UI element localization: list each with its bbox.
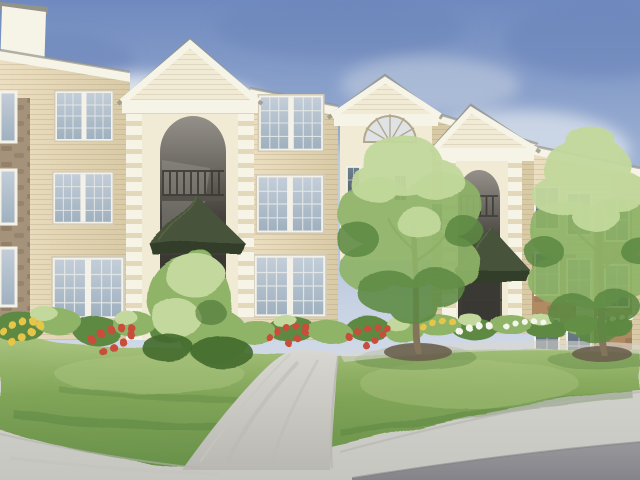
window xyxy=(0,248,16,306)
window xyxy=(258,94,325,152)
window xyxy=(0,170,16,224)
quoins xyxy=(126,114,142,340)
scene-canvas: Watercolor architectural rendering of a … xyxy=(0,0,640,480)
window xyxy=(54,90,114,142)
window xyxy=(52,171,114,225)
cornice xyxy=(122,100,258,114)
quoins xyxy=(238,114,254,340)
window xyxy=(255,174,324,234)
cornice xyxy=(436,148,534,161)
window xyxy=(0,92,16,142)
mid-section xyxy=(250,88,338,340)
quoins xyxy=(508,161,522,332)
window xyxy=(253,254,327,318)
watercolor-apartment-rendering: Watercolor architectural rendering of a … xyxy=(0,0,640,480)
